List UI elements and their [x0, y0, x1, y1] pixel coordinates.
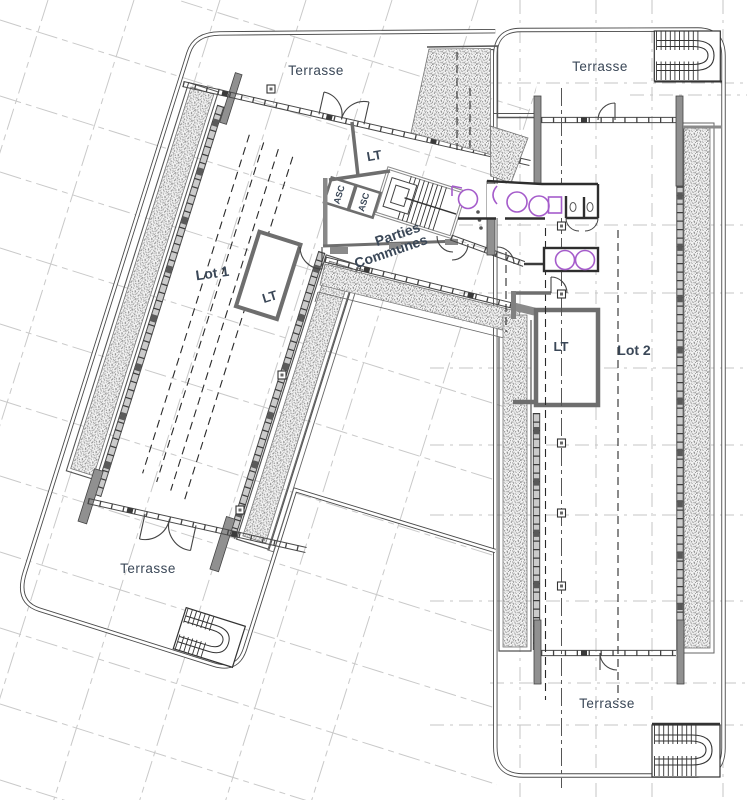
svg-text:Lot 2: Lot 2: [617, 342, 651, 358]
svg-text:Terrasse: Terrasse: [288, 63, 344, 78]
svg-text:Terrasse: Terrasse: [579, 696, 635, 711]
svg-text:Terrasse: Terrasse: [120, 561, 176, 576]
svg-text:LT: LT: [366, 147, 383, 164]
svg-text:LT: LT: [554, 339, 569, 354]
svg-text:Terrasse: Terrasse: [572, 59, 628, 74]
